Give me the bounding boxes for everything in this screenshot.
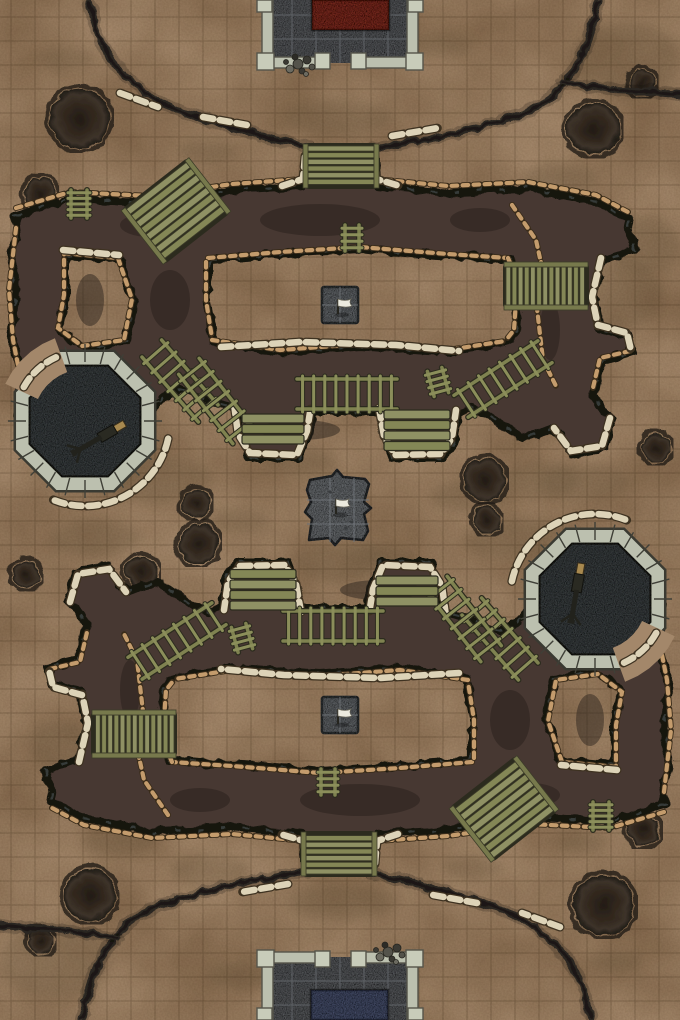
wall-pillar bbox=[408, 0, 423, 12]
crater bbox=[178, 485, 212, 519]
trench-ladder bbox=[283, 608, 383, 644]
battle-map-page bbox=[0, 0, 680, 1020]
trench-ladder bbox=[68, 190, 90, 218]
wall-pillar bbox=[351, 951, 366, 967]
crater bbox=[569, 870, 635, 936]
wall-pillar bbox=[406, 53, 423, 70]
battle-map bbox=[0, 0, 680, 1020]
wooden-bridge bbox=[91, 710, 177, 758]
crater bbox=[174, 519, 220, 565]
wall-pillar bbox=[257, 53, 274, 70]
trench-ladder bbox=[297, 376, 397, 412]
wall-pillar bbox=[257, 0, 272, 12]
sandbag-line bbox=[63, 250, 119, 255]
wall-pillar bbox=[408, 1008, 423, 1020]
sandbag-line bbox=[561, 765, 617, 770]
plank-platform bbox=[376, 576, 438, 606]
crater bbox=[8, 556, 42, 590]
wall-pillar bbox=[351, 53, 366, 69]
trench-ladder bbox=[590, 802, 612, 830]
wooden-bridge bbox=[503, 262, 589, 310]
floor-rug bbox=[311, 990, 388, 1020]
wall-pillar bbox=[257, 1008, 272, 1020]
plank-platform bbox=[242, 414, 304, 444]
crater bbox=[468, 501, 502, 535]
wall-pillar bbox=[406, 950, 423, 967]
crater bbox=[563, 98, 621, 156]
crater bbox=[638, 430, 672, 464]
floor-rug bbox=[312, 0, 389, 30]
wooden-bridge bbox=[301, 831, 377, 877]
central-stone-platform bbox=[305, 470, 371, 545]
crater bbox=[45, 84, 111, 150]
wall-pillar bbox=[315, 951, 330, 967]
crater bbox=[59, 864, 117, 922]
wall-pillar bbox=[315, 53, 330, 69]
crater bbox=[459, 454, 507, 502]
wooden-bridge bbox=[303, 143, 379, 189]
wall-pillar bbox=[257, 950, 274, 967]
